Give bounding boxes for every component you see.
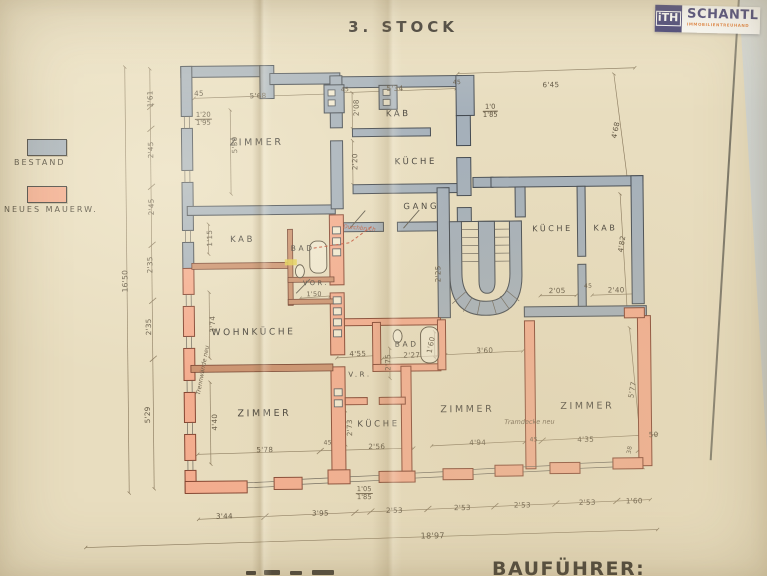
dimension-label: 18'97 xyxy=(421,531,445,540)
room-label: KÜCHE xyxy=(395,157,437,167)
dimension-label: 4'35 xyxy=(577,435,594,444)
annotation-label: Trennwände neu xyxy=(195,345,211,396)
dimension-label: 45 xyxy=(530,436,538,443)
dimension-label: 45 xyxy=(341,86,349,93)
cut-off-text-marks xyxy=(246,571,256,575)
dimension-fraction: 1'201'95 xyxy=(195,112,212,127)
dimension-label: 5'29 xyxy=(143,406,152,423)
dimension-label: 45 xyxy=(453,79,461,86)
annotation-label: Durchbruch xyxy=(343,224,376,233)
floor-plan-labels: ZIMMERKABKÜCHEGANGKABBADVOR.WOHNKÜCHEZIM… xyxy=(0,0,767,576)
dimension-label: 50 xyxy=(649,430,659,439)
room-label: GANG xyxy=(403,202,439,212)
dimension-label: 2'20 xyxy=(350,153,359,170)
dimension-fraction: 1'051'85 xyxy=(356,486,373,501)
room-label: ZIMMER xyxy=(560,400,614,412)
dimension-label: 5'30 xyxy=(230,136,239,153)
dimension-label: 5'68 xyxy=(250,91,267,100)
dimension-label: 45 xyxy=(324,439,332,446)
dimension-label: 2'53 xyxy=(454,503,471,512)
room-label: ZIMMER xyxy=(237,408,291,420)
dimension-label: 2'27 xyxy=(403,351,420,360)
dimension-label: 2'08 xyxy=(352,99,361,116)
schantl-logo: iTH SCHANTL IMMOBILIENTREUHAND xyxy=(655,5,761,35)
dimension-label: 5'34 xyxy=(386,84,403,93)
room-label: KAB xyxy=(593,223,617,232)
legend-swatch-new xyxy=(27,186,67,203)
dimension-label: 6'45 xyxy=(542,80,559,89)
room-label: KAB xyxy=(230,235,255,245)
dimension-label: 3'74 xyxy=(208,316,217,333)
legend-swatch-existing xyxy=(27,139,67,156)
cut-off-text-marks xyxy=(264,570,280,575)
room-label: VOR. xyxy=(303,279,329,287)
dimension-label: 2'45 xyxy=(146,141,155,158)
cut-off-text-marks xyxy=(290,571,302,575)
dimension-label: 2'40 xyxy=(608,285,625,294)
dimension-label: 45 xyxy=(584,283,592,290)
dimension-label: 1'60 xyxy=(425,336,437,354)
dimension-label: 1'15 xyxy=(205,230,214,247)
plan-title: 3. STOCK xyxy=(348,18,458,36)
dimension-label: 45 xyxy=(194,89,204,98)
room-label: KÜCHE xyxy=(357,419,399,429)
dimension-label: 2'73 xyxy=(345,419,354,436)
legend-label-new: NEUES MAUERW. xyxy=(4,205,98,214)
dimension-label: 1'50 xyxy=(306,290,321,298)
room-label: V.R. xyxy=(348,371,371,379)
room-label: KAB xyxy=(386,109,411,119)
room-label: KÜCHE xyxy=(532,224,573,233)
dimension-label: 2'75 xyxy=(383,354,392,371)
floor-plan-photo: ZIMMERKABKÜCHEGANGKABBADVOR.WOHNKÜCHEZIM… xyxy=(0,0,767,576)
room-label: BAD xyxy=(291,244,315,253)
dimension-label: 2'53 xyxy=(386,506,403,515)
baufuehrer-caption: BAUFÜHRER: xyxy=(492,558,645,576)
dimension-label: 4'82 xyxy=(616,235,628,253)
dimension-label: 1'60 xyxy=(626,496,643,505)
dimension-label: 2'35 xyxy=(145,256,154,273)
dimension-label: 2'53 xyxy=(514,500,531,509)
dimension-label: 5'77 xyxy=(626,381,638,399)
room-label: WOHNKÜCHE xyxy=(212,327,296,338)
dimension-fraction: 1'01'85 xyxy=(483,104,498,119)
dimension-label: 4'68 xyxy=(609,121,621,139)
logo-subtitle: IMMOBILIENTREUHAND xyxy=(687,21,760,28)
dimension-label: 4'40 xyxy=(210,414,219,431)
room-label: ZIMMER xyxy=(440,404,494,416)
legend-label-existing: BESTAND xyxy=(14,158,66,167)
room-label: BAD xyxy=(395,340,419,349)
dimension-label: 2'56 xyxy=(368,442,385,451)
dimension-label: 1'61 xyxy=(145,90,154,107)
dimension-label: 2'05 xyxy=(549,286,566,295)
dimension-label: 2'45 xyxy=(147,198,156,215)
dimension-label: 3'95 xyxy=(312,508,329,517)
dimension-label: 2'25 xyxy=(433,265,442,282)
dimension-label: 38 xyxy=(626,445,634,454)
ith-monogram-icon: iTH xyxy=(655,5,683,33)
cut-off-text-marks xyxy=(312,570,334,575)
dimension-label: 4'55 xyxy=(349,349,366,358)
dimension-label: 5'78 xyxy=(256,445,273,454)
dimension-label: 3'60 xyxy=(476,346,493,355)
dimension-label: 3'44 xyxy=(216,511,233,520)
dimension-label: 16'50 xyxy=(120,270,129,293)
annotation-label: Tramdecke neu xyxy=(504,418,554,427)
dimension-label: 4'94 xyxy=(469,438,486,447)
dimension-label: 2'53 xyxy=(579,498,596,507)
dimension-label: 2'35 xyxy=(144,318,153,335)
